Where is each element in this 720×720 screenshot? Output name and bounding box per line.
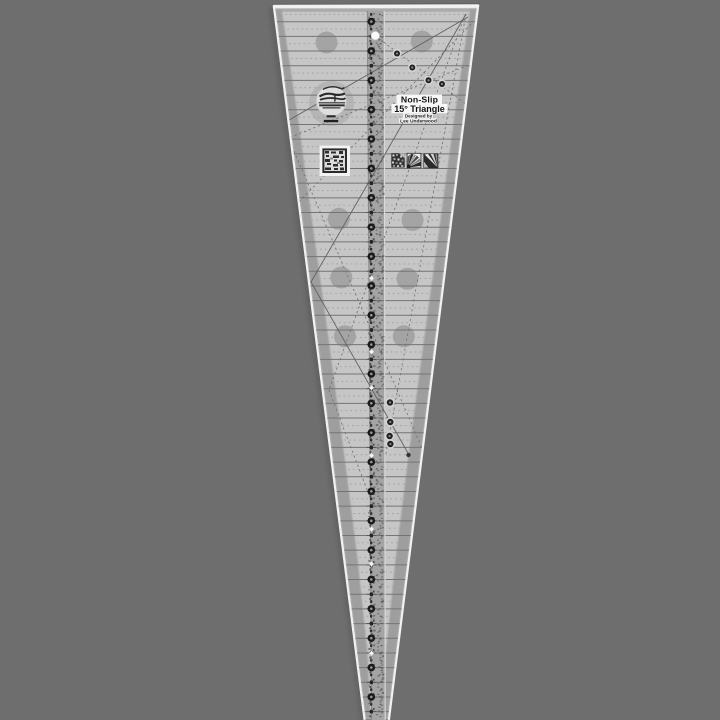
svg-text:Lee Underwood: Lee Underwood [400,119,437,125]
svg-text:15° Triangle: 15° Triangle [394,104,445,114]
svg-text:Designed by: Designed by [405,114,433,119]
